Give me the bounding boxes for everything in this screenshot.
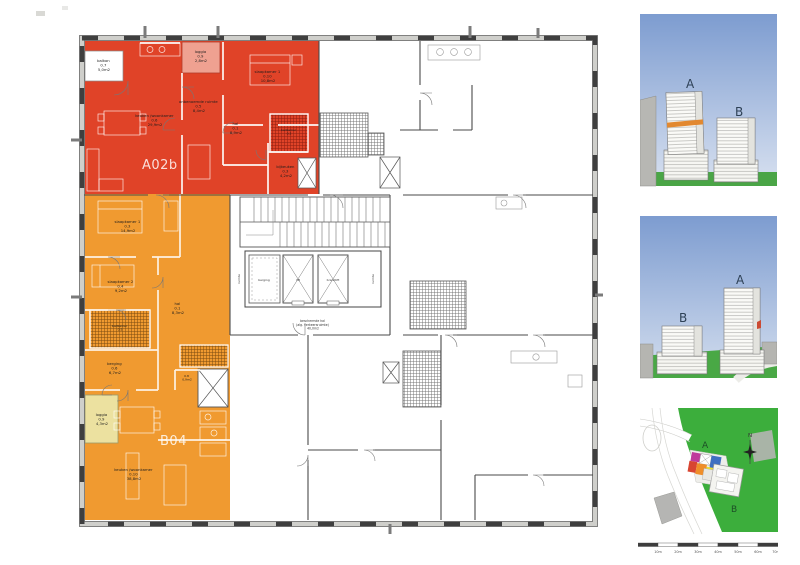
tower-b xyxy=(657,326,707,374)
render-top-label-b: B xyxy=(735,105,743,119)
neighbour-footprint xyxy=(750,430,776,462)
toilet-b-hatch xyxy=(180,345,228,367)
render-middle-label-b: B xyxy=(679,311,687,325)
render-middle-label-a: A xyxy=(736,273,745,287)
lift-lobby: berging lift brandlift ruimte ruimte xyxy=(237,251,381,307)
scale-tick: 10m xyxy=(654,550,662,554)
tower-a xyxy=(664,91,708,180)
core-hal-label: beschermde hal (alg. verkeersruimte) 40,… xyxy=(296,319,330,331)
site-label-b: B xyxy=(731,505,737,515)
furniture-white-units xyxy=(428,45,582,387)
unit-a-label: A02b xyxy=(142,158,178,173)
scale-tick: 20m xyxy=(674,550,682,554)
site-map: A B N xyxy=(638,406,778,538)
scale-tick: 40m xyxy=(714,550,722,554)
scan-mark xyxy=(36,11,45,16)
scale-tick: 70m xyxy=(772,550,778,554)
neighbour-building xyxy=(640,96,656,186)
stairwell xyxy=(240,197,390,247)
unit-b-label: B04 xyxy=(160,434,187,449)
tower-a xyxy=(720,288,764,374)
lift-right-label: brandlift xyxy=(327,278,340,282)
scale-tick: 50m xyxy=(734,550,742,554)
scan-mark xyxy=(62,6,68,10)
scanned-floorplan-sheet: berging lift brandlift ruimte ruimte bes… xyxy=(0,0,800,565)
core-ruimte-right: ruimte xyxy=(371,274,375,284)
neighbour-building xyxy=(640,344,653,378)
scale-tick: 60m xyxy=(754,550,762,554)
svg-text:N: N xyxy=(748,433,752,439)
core-ruimte-left: ruimte xyxy=(237,274,241,284)
render-top: A B xyxy=(640,14,777,194)
render-middle: B A xyxy=(640,216,777,384)
render-top-label-a: A xyxy=(686,77,695,91)
floor-plan: berging lift brandlift ruimte ruimte bes… xyxy=(68,25,603,535)
site-label-a: A xyxy=(702,441,709,451)
tower-b xyxy=(714,118,758,182)
scale-tick: 30m xyxy=(694,550,702,554)
core-berging-label: berging xyxy=(258,278,270,282)
scale-bar: 10m 20m 30m 40m 50m 60m 70m xyxy=(638,542,778,556)
